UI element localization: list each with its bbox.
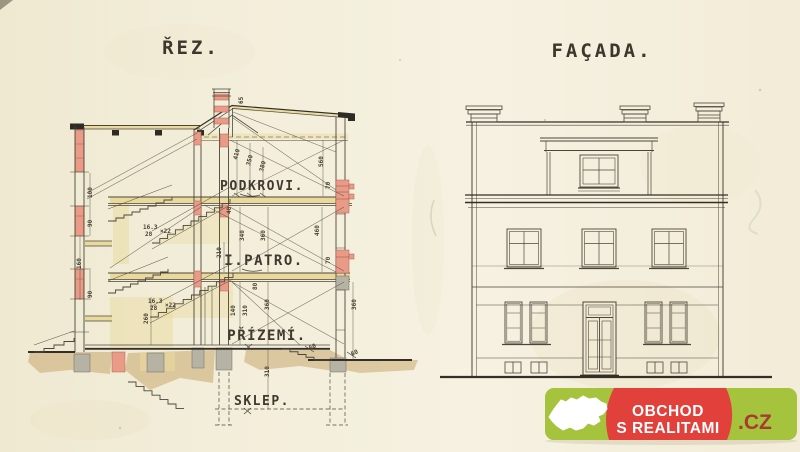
dimension-label: 310 — [242, 305, 249, 316]
facade-chimneys — [466, 103, 724, 122]
facade-first-floor-windows — [472, 229, 723, 287]
chimney — [212, 89, 231, 128]
logo-text-line1: OBCHOD — [632, 403, 704, 420]
section-title: ŘEZ. — [162, 35, 220, 59]
dimension-label: 70 — [325, 256, 332, 264]
dimension-label: 380 — [258, 160, 268, 173]
dimension-label: 28 — [145, 231, 153, 238]
window — [505, 302, 522, 343]
dimension-label: 310 — [264, 366, 271, 377]
dimension-label: 90 — [87, 290, 94, 298]
dimension-label: 65 — [238, 96, 245, 104]
logo-text-line2: S REALITAMI — [616, 420, 719, 437]
window — [504, 229, 544, 269]
dimension-label: 90 — [87, 219, 94, 227]
dimension-label: 16.3 — [143, 224, 158, 231]
dimension-label: 360 — [260, 230, 267, 241]
section-drawing: PODKROVI.I.PATRO.PŘÍZEMÍ.SKLEP. 41035038… — [28, 89, 418, 425]
dimension-label: 260 — [143, 313, 150, 324]
dimension-label: 60 — [350, 348, 360, 358]
dimension-label: 410 — [232, 148, 242, 161]
dimension-label: 360 — [264, 299, 271, 310]
dimension-label: 160 — [76, 258, 83, 269]
window — [579, 229, 619, 269]
dimension-label: 560 — [318, 156, 325, 167]
dimension-label: 40 — [226, 206, 233, 214]
dimension-label: 100 — [87, 187, 94, 198]
dimension-label: 210 — [216, 247, 223, 258]
window — [649, 229, 689, 269]
dimension-label: 70 — [325, 181, 332, 189]
scanned-drawing-page: PODKROVI.I.PATRO.PŘÍZEMÍ.SKLEP. 41035038… — [0, 0, 800, 452]
dimension-label: 140 — [230, 305, 237, 316]
dimension-label: 340 — [239, 230, 246, 241]
dimension-label: 80 — [252, 282, 259, 290]
dimension-label: 28 — [150, 305, 158, 312]
floor-label: I.PATRO. — [224, 253, 303, 269]
dimension-label: 460 — [314, 225, 321, 236]
label-flourishes — [240, 194, 262, 414]
floor-label: PODKROVI. — [220, 179, 304, 194]
eave-cornice — [338, 112, 355, 121]
floor-label: PŘÍZEMÍ. — [227, 326, 306, 344]
dimension-label: ×22 — [160, 228, 171, 235]
dimension-label: ×22 — [165, 302, 176, 309]
dimension-label: 350 — [245, 154, 255, 167]
dimension-label: 360 — [351, 299, 358, 310]
dormer-window — [578, 155, 620, 191]
floor-label: SKLEP. — [234, 394, 290, 409]
watermark-logo: OBCHOD S REALITAMI .CZ — [545, 388, 797, 445]
dimension-label: 16.3 — [148, 298, 163, 305]
pencil-mark — [749, 190, 760, 234]
scan-corner-mark — [0, 0, 13, 10]
facade-title: FAÇADA. — [551, 40, 652, 62]
logo-tld: .CZ — [738, 411, 772, 434]
